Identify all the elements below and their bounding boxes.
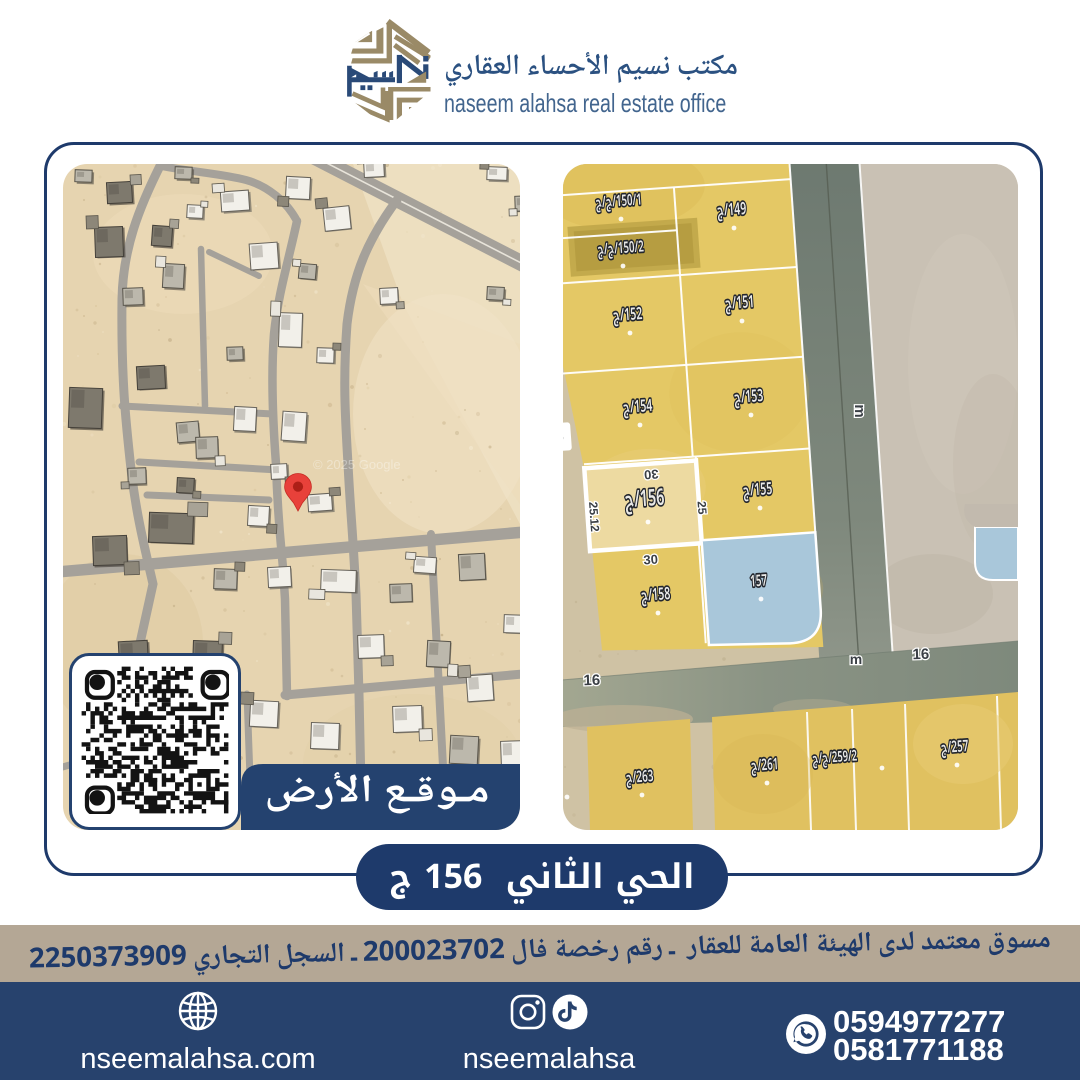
svg-text:25.12: 25.12	[586, 501, 602, 532]
svg-text:© 2025 Google: © 2025 Google	[313, 457, 401, 472]
svg-text:nseemalahsa.com: nseemalahsa.com	[80, 1043, 315, 1075]
svg-text:nseemalahsa: nseemalahsa	[463, 1043, 636, 1075]
svg-text:30: 30	[643, 552, 658, 568]
svg-text:3: 3	[563, 433, 565, 443]
svg-text:30: 30	[644, 467, 659, 483]
svg-text:25: 25	[695, 501, 710, 516]
svg-text:m: m	[850, 651, 862, 667]
svg-text:m: m	[851, 404, 868, 417]
svg-text:16: 16	[583, 672, 600, 690]
svg-text:16: 16	[912, 646, 929, 664]
svg-text:0581771188: 0581771188	[833, 1032, 1004, 1067]
